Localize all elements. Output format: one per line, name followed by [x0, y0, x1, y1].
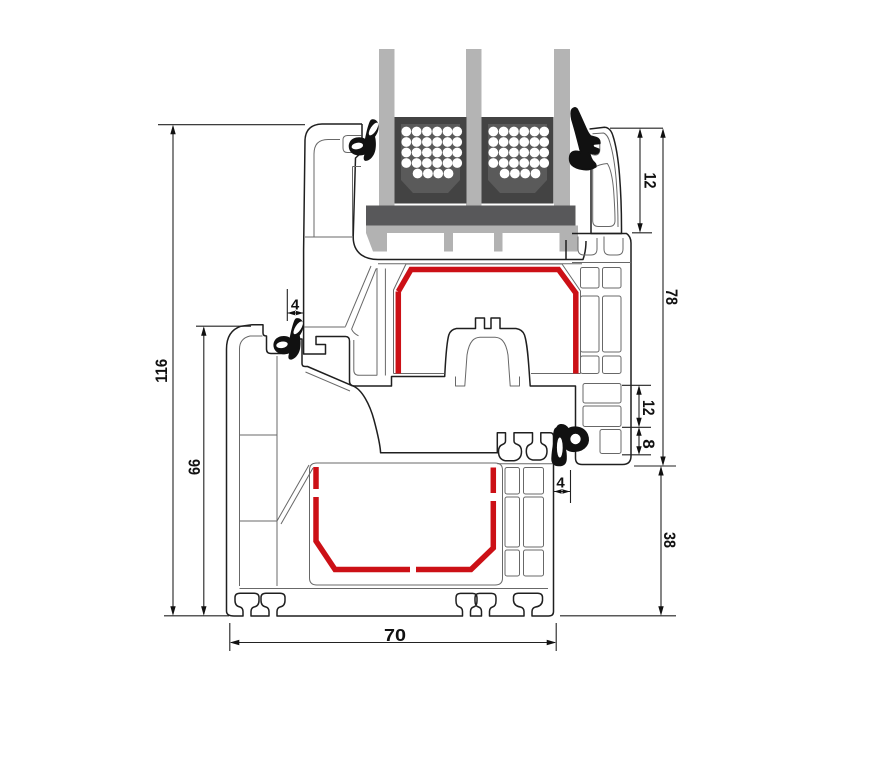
svg-text:78: 78	[662, 289, 681, 305]
svg-text:4: 4	[556, 475, 565, 492]
svg-text:8: 8	[639, 439, 658, 448]
svg-text:70: 70	[384, 625, 406, 645]
svg-text:38: 38	[660, 532, 679, 548]
svg-text:116: 116	[152, 359, 171, 383]
svg-text:12: 12	[641, 173, 660, 189]
svg-text:66: 66	[185, 459, 204, 475]
svg-text:12: 12	[639, 400, 658, 416]
svg-text:4: 4	[291, 297, 300, 314]
